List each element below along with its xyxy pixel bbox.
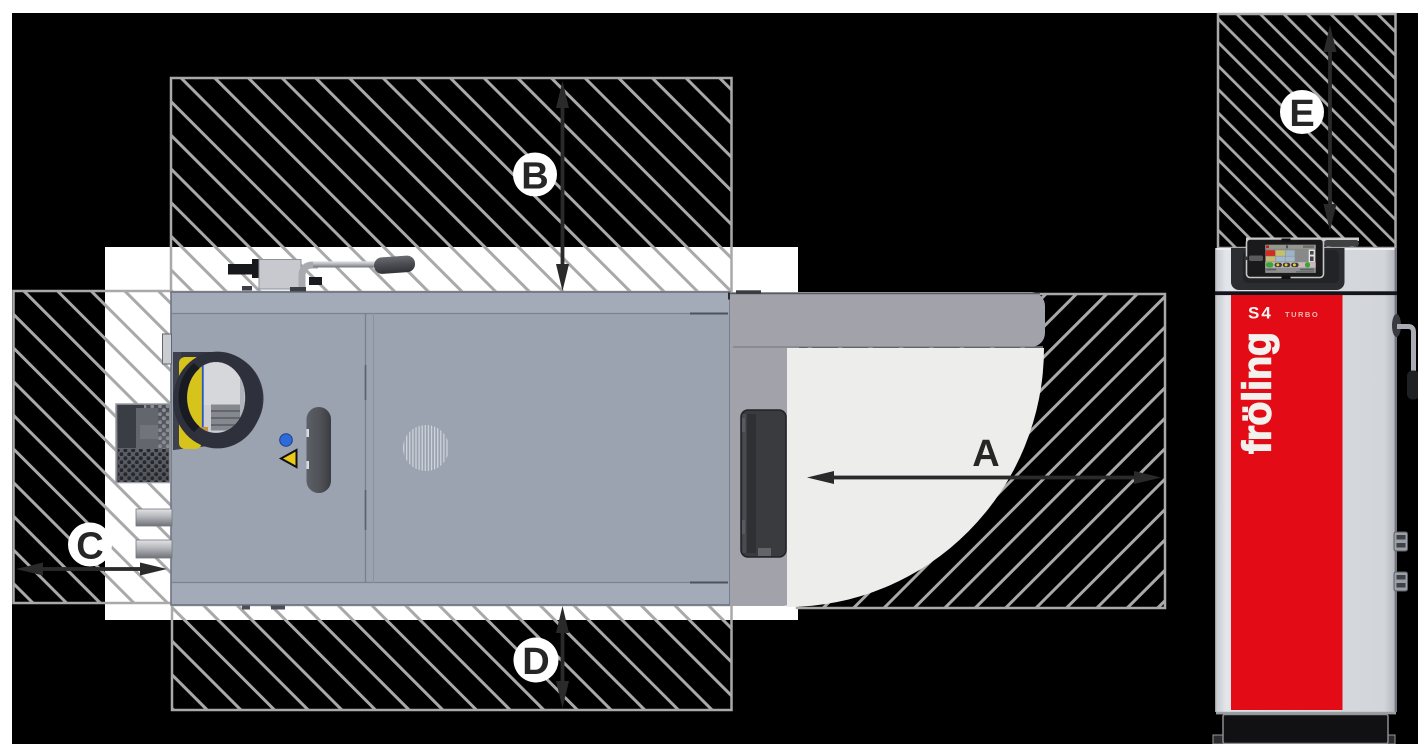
svg-text:E: E [1289,93,1314,135]
svg-text:S4: S4 [1248,304,1273,323]
svg-text:A: A [972,433,999,475]
svg-text:B: B [521,156,548,198]
svg-text:C: C [76,526,103,568]
svg-text:fröling: fröling [1236,332,1280,454]
svg-text:D: D [522,641,549,683]
svg-text:TURBO: TURBO [1285,310,1319,319]
